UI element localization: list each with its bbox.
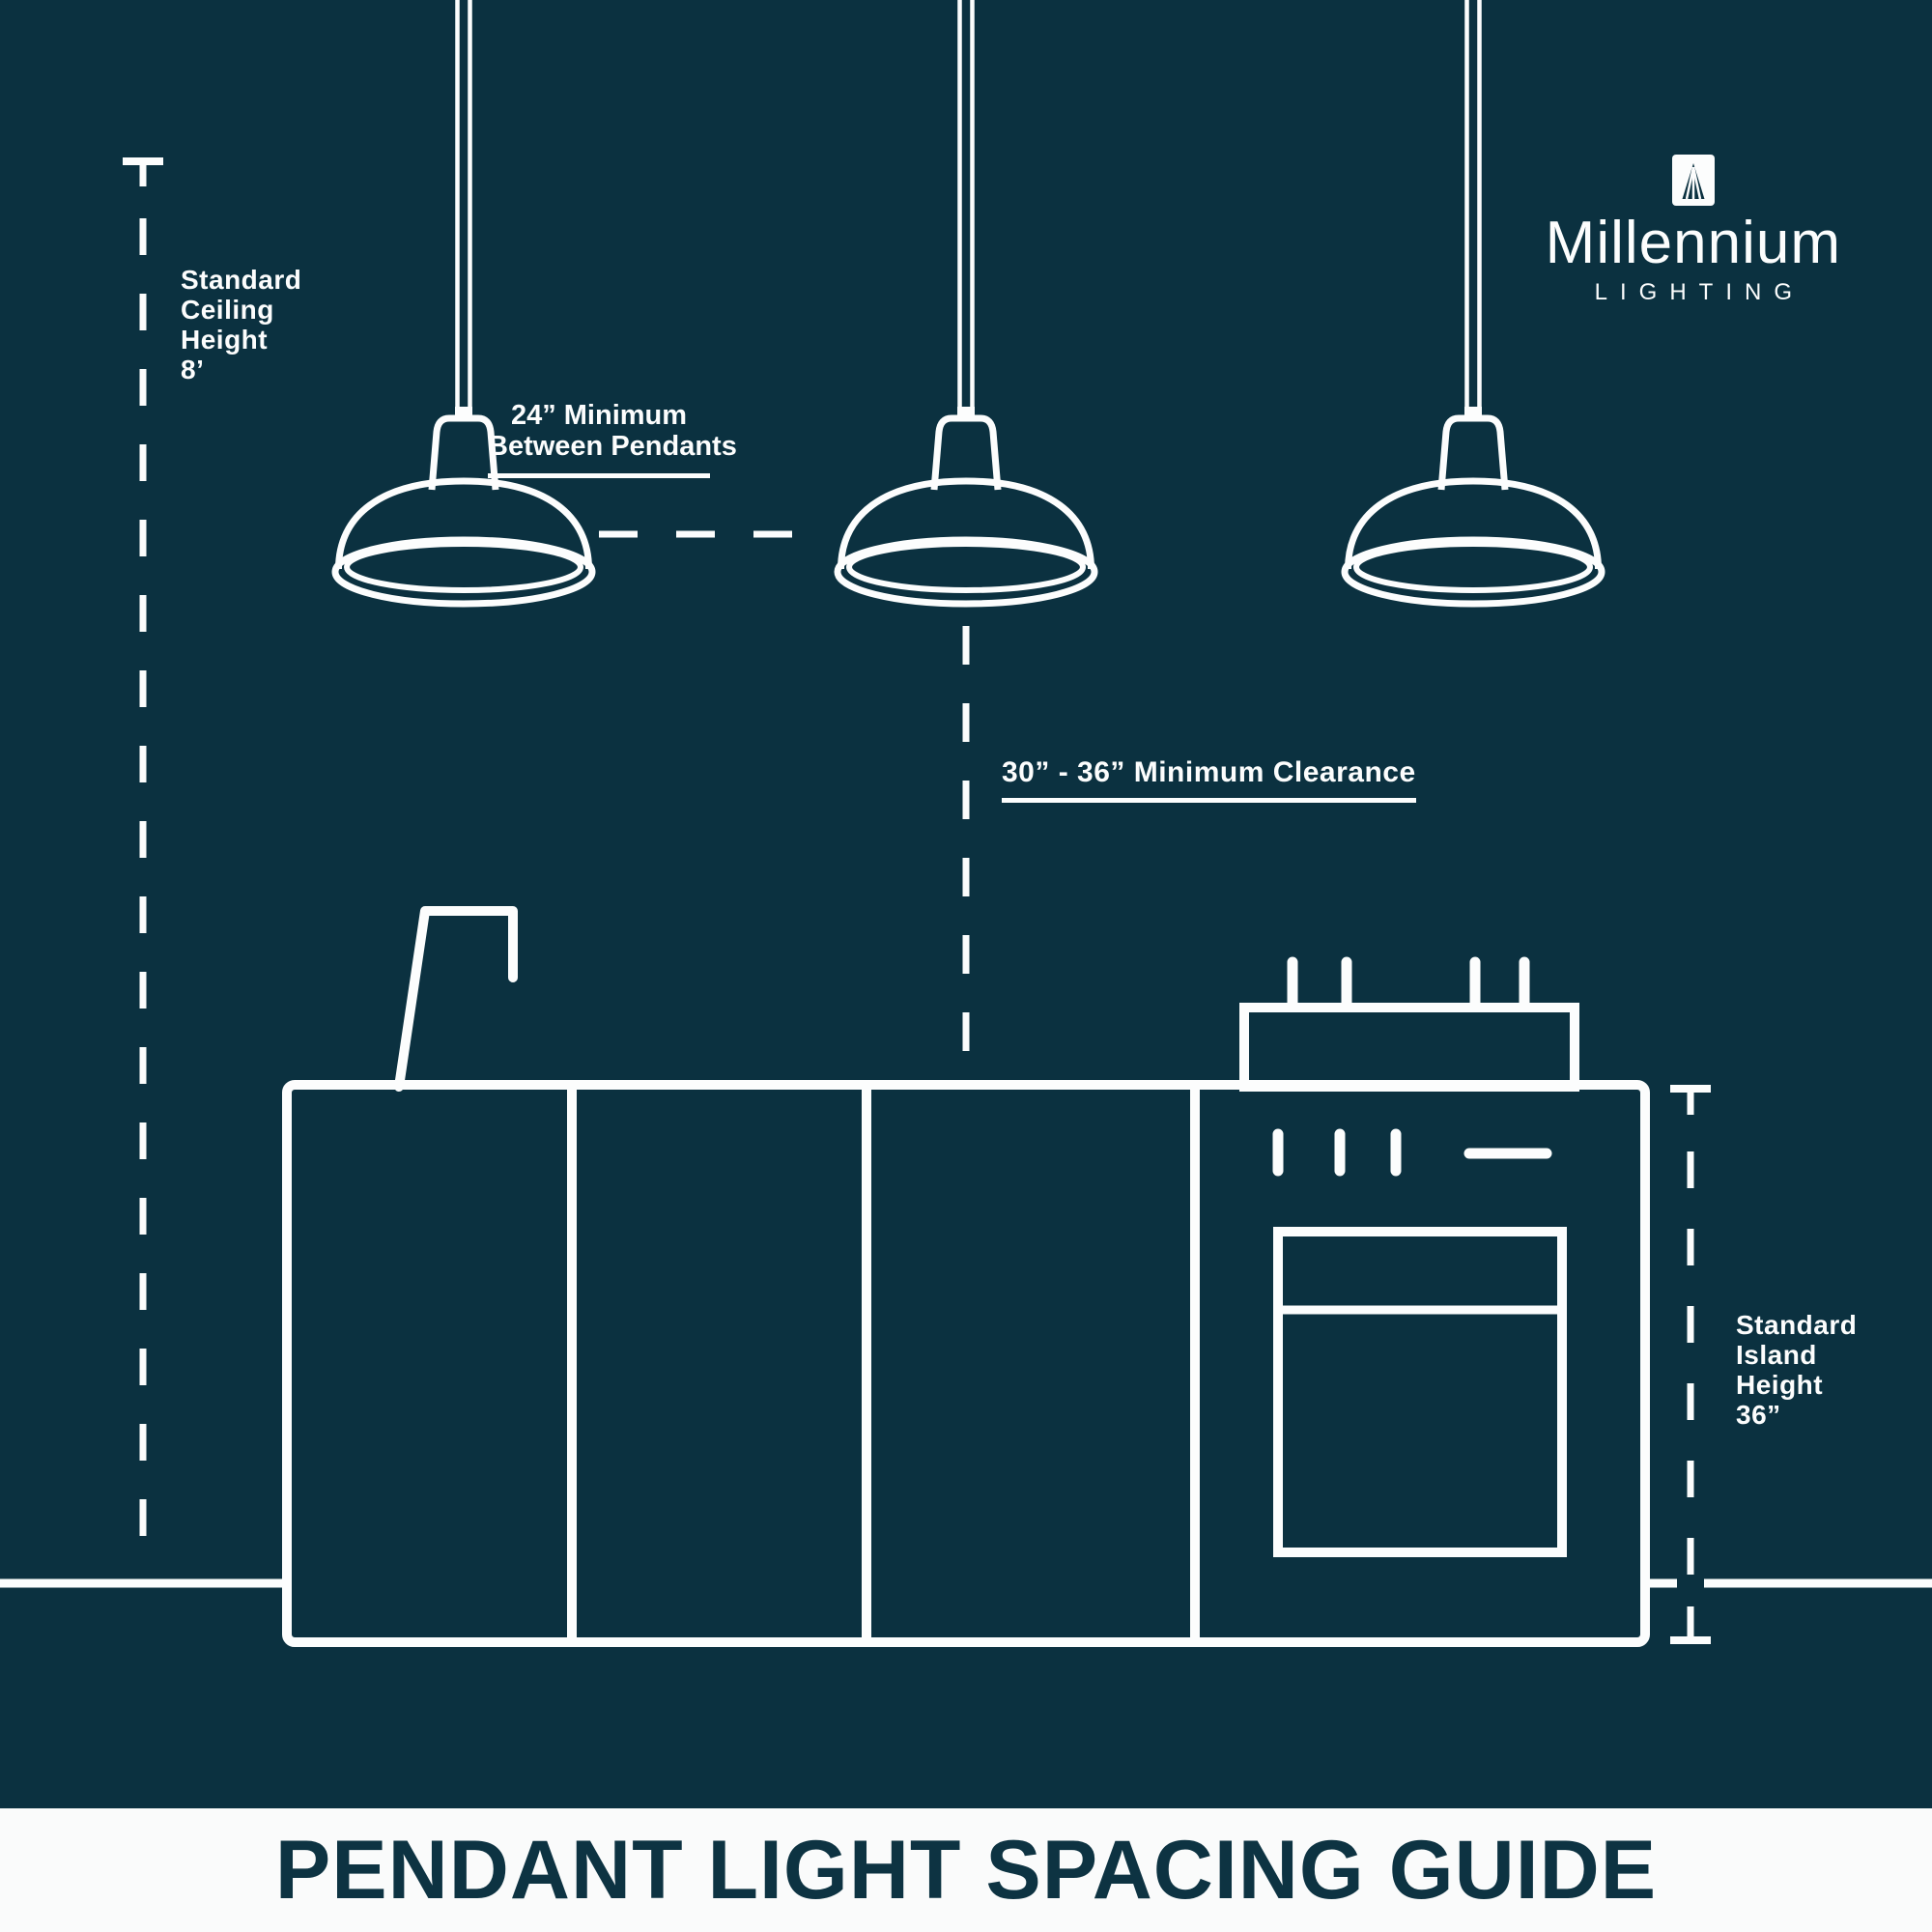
island-height-label-line: 36” bbox=[1736, 1400, 1857, 1430]
stove-control-panel bbox=[1244, 962, 1575, 1087]
ceiling-dimension-line bbox=[123, 161, 163, 1571]
pendant-light-icon-1 bbox=[335, 0, 592, 604]
pendant-spacing-infographic: Standard Ceiling Height 8’ 24” Minimum B… bbox=[0, 0, 1932, 1932]
island-height-label-line: Height bbox=[1736, 1370, 1857, 1400]
clearance-label: 30” - 36” Minimum Clearance bbox=[1002, 756, 1416, 803]
island-height-label: Standard Island Height 36” bbox=[1736, 1310, 1857, 1430]
island-height-label-line: Standard bbox=[1736, 1310, 1857, 1340]
footer-bar: PENDANT LIGHT SPACING GUIDE bbox=[0, 1808, 1932, 1932]
faucet-icon bbox=[399, 911, 513, 1087]
brand-logo: Millennium LIGHTING bbox=[1546, 155, 1841, 304]
footer-title: PENDANT LIGHT SPACING GUIDE bbox=[275, 1823, 1657, 1918]
pendant-spacing-label-line: 24” Minimum bbox=[488, 400, 710, 431]
ceiling-height-label-line: 8’ bbox=[181, 355, 301, 384]
millennium-logo-icon bbox=[1672, 155, 1715, 206]
island-dimension-line bbox=[1670, 1089, 1711, 1640]
ceiling-height-label: Standard Ceiling Height 8’ bbox=[181, 265, 301, 384]
stove-knobs-and-handle bbox=[1278, 1134, 1547, 1171]
kitchen-island-outline bbox=[287, 1085, 1645, 1642]
brand-subtitle: LIGHTING bbox=[1595, 281, 1804, 304]
island-height-label-line: Island bbox=[1736, 1340, 1857, 1370]
ceiling-height-label-line: Standard bbox=[181, 265, 301, 295]
ceiling-height-label-line: Ceiling bbox=[181, 295, 301, 325]
pendant-light-icon-2 bbox=[838, 0, 1094, 604]
ceiling-height-label-line: Height bbox=[181, 325, 301, 355]
pendant-spacing-label: 24” Minimum Between Pendants bbox=[488, 400, 710, 478]
pendant-spacing-label-line: Between Pendants bbox=[488, 431, 710, 462]
brand-name: Millennium bbox=[1546, 213, 1841, 273]
oven-door bbox=[1278, 1232, 1562, 1552]
